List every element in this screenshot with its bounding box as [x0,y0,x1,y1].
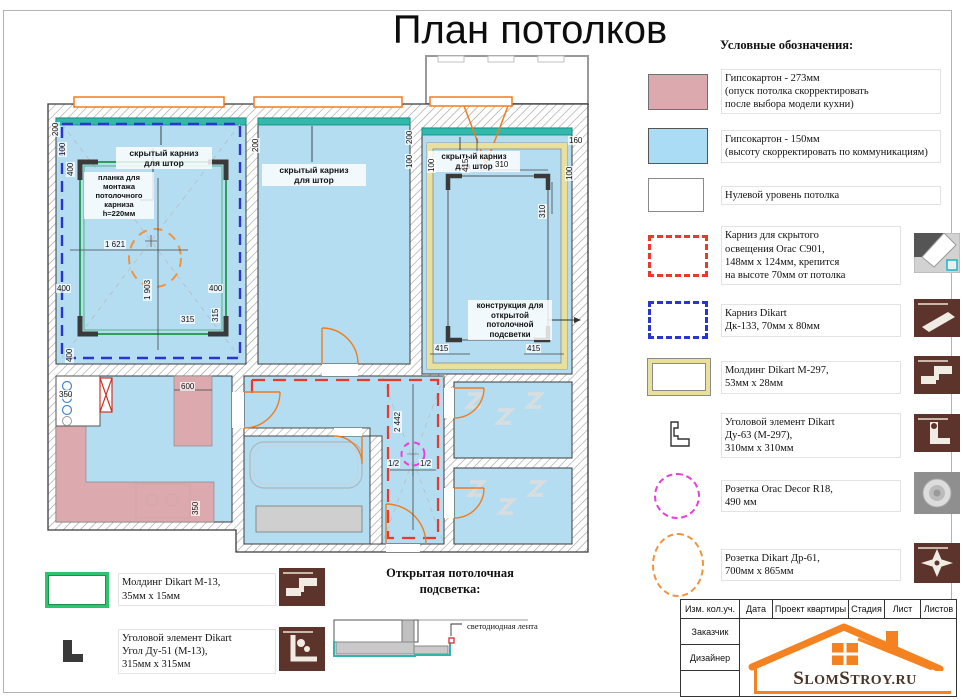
legend-item-gypsum-273: Гипсокартон - 273мм (опуск потолка скорр… [648,69,960,114]
dim: 315 [211,308,220,323]
legend-item-cornice-dk133: Карниз Dikart Дк-133, 70мм х 80мм [648,299,960,342]
legend-panel: Условные обозначения: Гипсокартон - 273м… [648,38,960,611]
tb-header-izm: Изм. кол.уч. [681,600,740,619]
bath-slab [256,506,362,532]
legend-item-label: Карниз для скрытого освещения Orac C901,… [721,226,901,285]
legend-item-rosette-r18: Розетка Orac Decor R18, 490 мм [648,472,960,519]
floor-plan: скрытый карниз для штор скрытый карниз д… [40,52,600,564]
slomstroy-logo: SLOMSTROY.RU [740,619,952,696]
legend-item-label: Гипсокартон - 150мм (высоту скорректиров… [721,130,941,162]
title-block: Изм. кол.уч. Дата Проект квартиры Стадия… [680,599,957,697]
logo-text: SLOMSTROY.RU [754,668,951,694]
dim: 400 [66,162,75,177]
dim: 1/2 [419,459,432,468]
dim: 350 [58,390,73,399]
tb-header-listov: Листов [921,600,957,619]
dim: 415 [526,344,541,353]
legend-heading: Условные обозначения: [720,38,960,53]
legend-item-label: Уголовой элемент Dikart Ду-63 (М-297), 3… [721,413,901,458]
dim: 415 [461,158,470,173]
swatch-corner-du63 [662,420,692,452]
legend-item-label: Розетка Orac Decor R18, 490 мм [721,480,901,512]
windows [74,97,512,107]
legend-item-corner-du51: Уголовой элемент Dikart Угол Ду-51 (М-13… [45,627,325,676]
open-light-detail: Открытая потолочная подсветка: светодиод… [330,566,635,696]
dim: 315 [180,315,195,324]
tb-header-list: Лист [885,600,921,619]
swatch-molding-m297 [648,359,710,395]
dim: 160 [568,136,583,145]
dim: 1 903 [143,279,152,301]
dim: 200 [405,130,414,145]
logo-part: LOM [804,673,839,688]
swatch-corner-du51 [59,638,87,666]
legend-item-corner-du63: Уголовой элемент Dikart Ду-63 (М-297), 3… [648,413,960,458]
legend-item-cornice-c901: Карниз для скрытого освещения Orac C901,… [648,226,960,285]
swatch-gypsum-273 [648,74,708,110]
photo-rosette-r18 [914,472,960,519]
swatch-cornice-c901 [648,235,708,277]
photo-cornice-dk133 [914,299,960,342]
tb-row-customer: Заказчик [681,619,740,645]
tb-row-designer: Дизайнер [681,645,740,671]
logo-roof [748,619,944,671]
tb-header-stadia: Стадия [849,600,885,619]
legend-item-molding-m297: Молдинг Dikart М-297, 53мм х 28мм [648,356,960,399]
photo-cornice-c901 [914,233,960,278]
dim: 400 [56,284,71,293]
legend-item-rosette-dr61: Розетка Dikart Др-61, 700мм х 865мм [648,533,960,597]
tb-header-proekt: Проект квартиры [773,600,849,619]
swatch-cornice-dk133 [648,301,708,339]
legend-item-label: Молдинг Dikart М-13, 35мм х 15мм [118,573,276,605]
swatch-rosette-r18 [654,473,700,519]
swatch-zero-level [648,178,704,212]
logo-part: S [793,668,804,689]
logo-part: S [839,668,850,689]
logo-cell: SLOMSTROY.RU [740,619,957,697]
photo-corner-du63 [914,414,960,457]
legend-item-label: Гипсокартон - 273мм (опуск потолка скорр… [721,69,941,114]
logo-chimney [886,631,898,651]
dim: 310 [494,160,509,169]
dim: 350 [191,501,200,516]
dim: 100 [405,154,414,169]
led-strip-mark [449,638,454,643]
dim: 200 [251,138,260,153]
swatch-rosette-dr61 [652,533,704,597]
dim: 2 442 [393,411,402,433]
legend-item-molding-m13: Молдинг Dikart М-13, 35мм х 15мм [45,568,325,611]
legend-item-label: Розетка Dikart Др-61, 700мм х 865мм [721,549,901,581]
legend-item-label: Уголовой элемент Dikart Угол Ду-51 (М-13… [118,629,276,674]
tb-row-empty [681,671,740,697]
dim: 600 [180,382,195,391]
dim: 1/2 [387,459,400,468]
led-strip-label: светодиодная лента [467,621,538,631]
dim: 1 621 [104,240,126,249]
label-curtain-cornice-1: скрытый карниз для штор [116,147,212,169]
legend-item-label: Карниз Dikart Дк-133, 70мм х 80мм [721,304,901,336]
legend-item-gypsum-150: Гипсокартон - 150мм (высоту скорректиров… [648,128,960,164]
dim: 415 [434,344,449,353]
dim: 100 [565,166,574,181]
swatch-molding-m13 [45,572,109,608]
photo-molding-m297 [914,356,960,399]
dim: 200 [51,122,60,137]
legend-item-label: Молдинг Dikart М-297, 53мм х 28мм [721,361,901,393]
dim: 100 [58,142,67,157]
label-mount-plank: планка для монтажа потолочного карниза h… [84,172,154,219]
label-open-light: конструкция для открытой потолочной подс… [468,300,552,340]
swatch-gypsum-150 [648,128,708,164]
title-block-table: Изм. кол.уч. Дата Проект квартиры Стадия… [680,599,957,697]
label-curtain-cornice-2: скрытый карниз для штор [262,164,366,186]
legend-panel-bottom: Молдинг Dikart М-13, 35мм х 15мм Уголово… [45,568,325,692]
tb-header-data: Дата [740,600,773,619]
photo-corner-du51 [279,627,325,676]
bath-wall-v [370,436,382,544]
dim: 400 [208,284,223,293]
dim: 400 [65,348,74,363]
photo-rosette-dr61 [914,543,960,588]
dim: 100 [427,158,436,173]
legend-item-label: Нулевой уровень потолка [721,186,941,205]
logo-part: TROY.RU [850,673,916,688]
legend-item-zero-level: Нулевой уровень потолка [648,178,960,212]
dim: 310 [538,204,547,219]
detail-heading: Открытая потолочная подсветка: [350,566,550,597]
ceiling-plan-sheet: План потолков [0,0,963,700]
photo-molding-m13 [279,568,325,611]
